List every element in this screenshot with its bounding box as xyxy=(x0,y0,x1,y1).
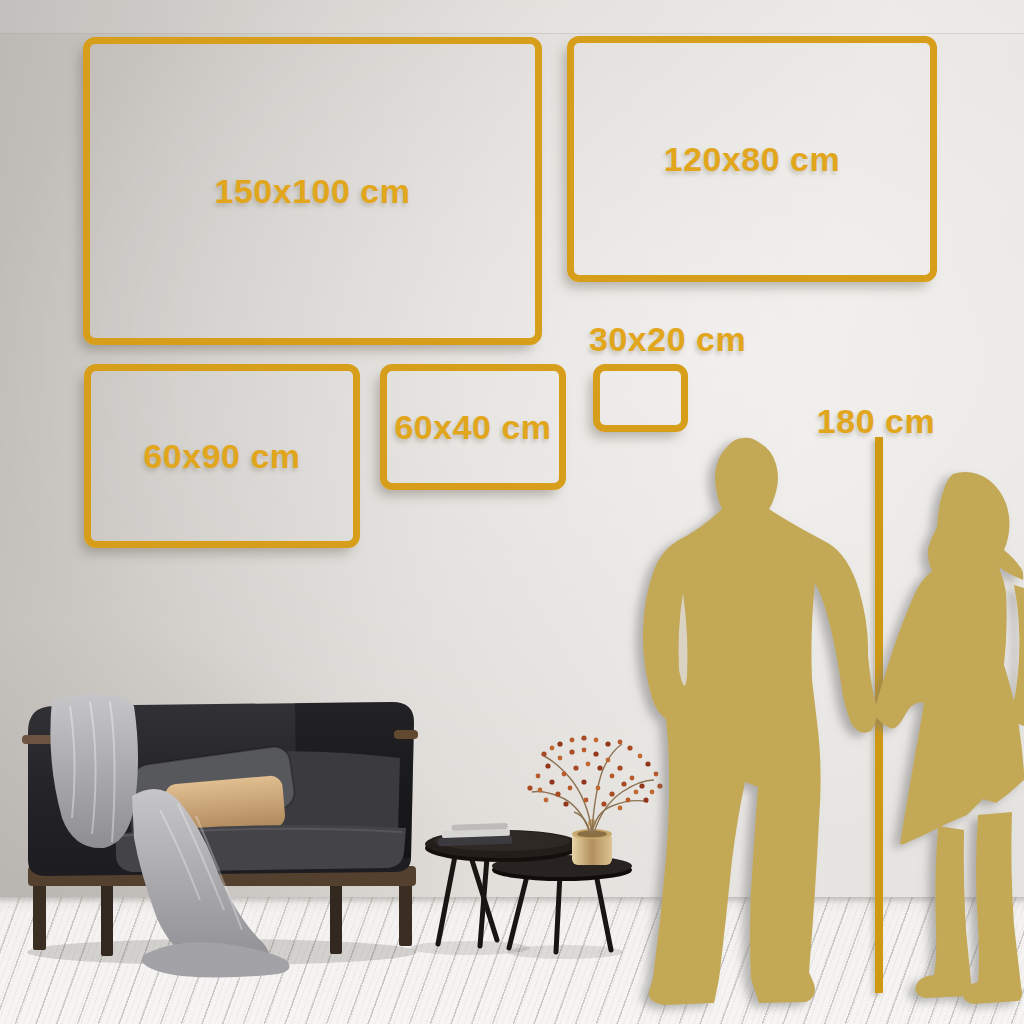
man-silhouette xyxy=(643,438,877,1005)
coffee-tables xyxy=(410,735,663,959)
size-guide-scene: 150x100 cm 120x80 cm 60x90 cm 60x40 cm 3… xyxy=(0,0,1024,1024)
woman-silhouette xyxy=(874,472,1024,1004)
books-stack xyxy=(438,823,513,847)
decorative-branch xyxy=(527,735,662,833)
room-scene xyxy=(0,0,1024,1024)
